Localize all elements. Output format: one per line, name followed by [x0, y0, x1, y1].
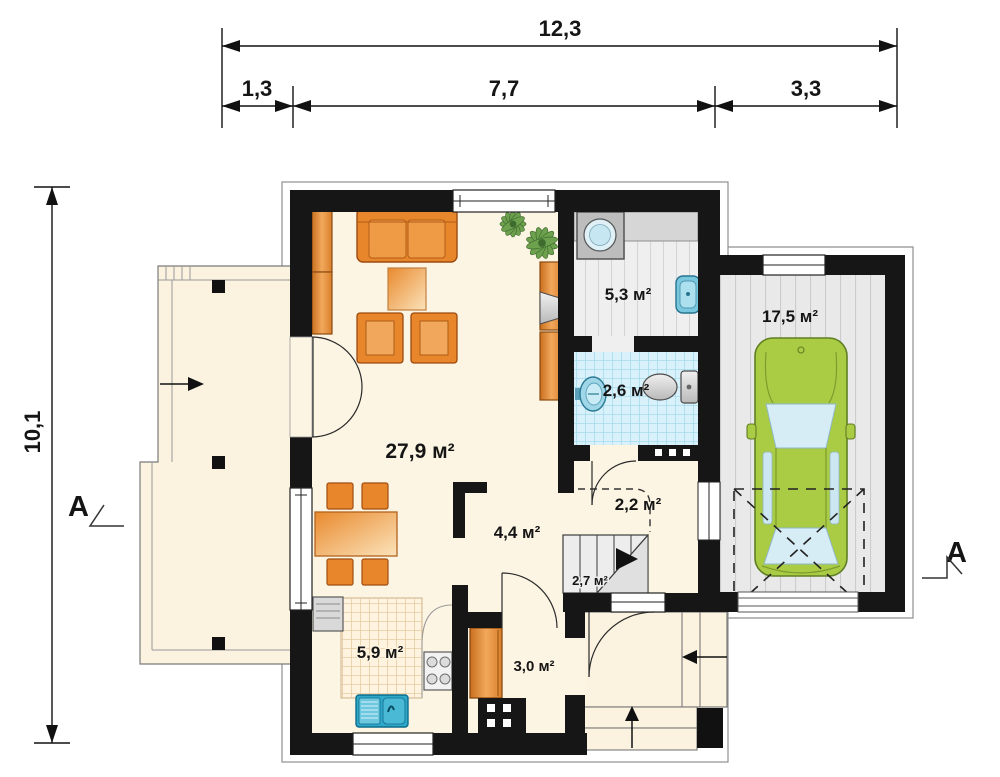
- dim-seg-1: 1,3: [242, 76, 273, 101]
- dim-seg-3: 3,3: [791, 76, 822, 101]
- utility-door-opening: [592, 336, 634, 352]
- car: [747, 338, 855, 576]
- wc-door-opening: [590, 445, 638, 461]
- window-hall-porch: [611, 593, 665, 612]
- section-marker-right: A: [922, 537, 967, 578]
- room-label-garage: 17,5 м²: [762, 307, 818, 326]
- dining-chair: [327, 483, 353, 509]
- sofa: [357, 208, 457, 262]
- room-label-kitchen: 5,9 м²: [357, 643, 404, 662]
- room-label-entry: 3,0 м²: [513, 658, 554, 675]
- armchair: [411, 313, 457, 363]
- porch-column: [697, 708, 723, 748]
- dim-total-height: 10,1: [20, 411, 45, 454]
- window-garage: [763, 255, 825, 275]
- section-label-left: A: [68, 491, 89, 523]
- dim-total-width: 12,3: [539, 16, 582, 41]
- car-windshield: [766, 404, 836, 448]
- room-label-wc: 2,6 м²: [603, 381, 650, 400]
- room-label-under-stairs: 2,2 м²: [615, 495, 662, 514]
- utility-sink-icon: [676, 276, 700, 313]
- stove-icon: [424, 652, 452, 690]
- car-rear-window: [764, 528, 838, 564]
- floor-plan-page: 27,9 м² 5,3 м² 2,6 м² 17,5 м² 4,4 м² 2,2…: [0, 0, 1000, 777]
- section-marker-left: A: [68, 491, 124, 526]
- car-mirror: [846, 424, 855, 439]
- window-kitchen: [353, 733, 433, 755]
- wall-cabinet: [312, 210, 332, 334]
- window-living-left: [290, 488, 312, 610]
- dining-table: [315, 512, 397, 556]
- wall-vent-grille: [655, 449, 690, 456]
- car-mirror: [747, 424, 756, 439]
- section-label-right: A: [946, 537, 967, 569]
- coffee-table: [388, 268, 426, 310]
- room-label-stairs: 2,7 м²: [572, 573, 608, 588]
- dining-chair: [362, 483, 388, 509]
- room-label-living: 27,9 м²: [385, 440, 454, 463]
- utility-room: [574, 212, 700, 338]
- washing-machine-icon: [577, 212, 624, 259]
- room-label-utility: 5,3 м²: [605, 285, 652, 304]
- french-door-opening: [290, 337, 312, 437]
- fridge-icon: [313, 597, 343, 631]
- armchair: [357, 313, 403, 363]
- window-living-top: [453, 190, 555, 212]
- entry-door-opening: [502, 612, 557, 628]
- dim-seg-2: 7,7: [489, 76, 520, 101]
- terrace: [140, 266, 292, 664]
- dining-chair: [327, 559, 353, 585]
- porch-door-opening: [565, 638, 585, 695]
- garage-gate: [738, 592, 858, 612]
- floor-plan-svg: 27,9 м² 5,3 м² 2,6 м² 17,5 м² 4,4 м² 2,2…: [0, 0, 1000, 777]
- entrance-porch: [583, 612, 727, 750]
- door-opening-garage: [698, 482, 720, 540]
- dining-chair: [362, 559, 388, 585]
- room-label-hall: 4,4 м²: [494, 523, 541, 542]
- entry-wardrobe: [470, 628, 502, 698]
- kitchen-sink-icon: [356, 695, 408, 727]
